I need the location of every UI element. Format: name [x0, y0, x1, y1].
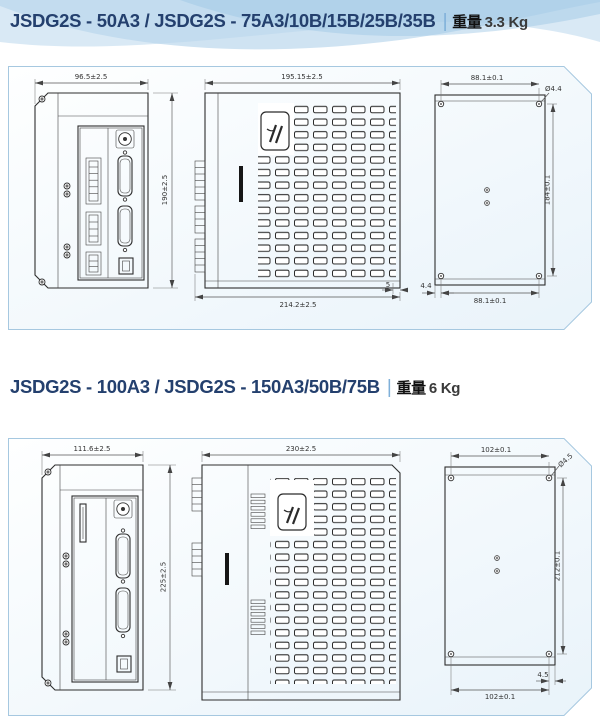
- mounting-hole-icon: [448, 651, 454, 657]
- screw-icon: [64, 244, 70, 250]
- handle-slot: [225, 553, 229, 585]
- screw-icon: [63, 553, 69, 559]
- screw-icon: [64, 191, 70, 197]
- section1-model-name: JSDG2S - 50A3 / JSDG2S - 75A3/10B/15B/25…: [10, 10, 436, 32]
- brand-logo-icon: [261, 112, 289, 150]
- hole-diameter-dim: Ø4.4: [545, 85, 562, 93]
- section1-weight-label: 重量: [452, 11, 481, 32]
- title-separator: |: [387, 377, 392, 399]
- side-lip-dim: 5: [386, 281, 390, 289]
- front-height-dim: 190±2.5: [161, 175, 169, 205]
- mounting-hole-icon: [438, 101, 443, 106]
- section2-drawing-panel: 111.6±2.5 225±2.5: [8, 438, 592, 716]
- mounting-hole-icon: [438, 273, 443, 278]
- screw-icon: [45, 469, 51, 475]
- screw-icon: [64, 183, 70, 189]
- back-hole-span-top-dim: 88.1±0.1: [471, 74, 504, 82]
- screw-icon: [39, 96, 45, 102]
- screw-icon: [63, 631, 69, 637]
- front-width-dim: 111.6±2.5: [73, 445, 110, 453]
- screw-icon: [45, 680, 51, 686]
- screw-icon: [485, 188, 490, 193]
- section2-weight-value: 6 Kg: [429, 380, 460, 397]
- brand-logo-icon: [278, 494, 306, 530]
- side-depth-dim: 195.15±2.5: [281, 73, 323, 81]
- back-hole-span-top-dim: 102±0.1: [481, 446, 511, 454]
- section1-weight-value: 3.3 Kg: [485, 14, 528, 31]
- screw-icon: [39, 279, 45, 285]
- side-depth-dim: 230±2.5: [286, 445, 316, 453]
- mounting-hole-icon: [536, 101, 541, 106]
- screw-icon: [485, 201, 490, 206]
- mounting-hole-icon: [448, 475, 454, 481]
- screw-icon: [63, 561, 69, 567]
- section2-weight-label: 重量: [396, 377, 425, 398]
- section2-title: JSDG2S - 100A3 / JSDG2S - 150A3/50B/75B …: [10, 376, 460, 399]
- section2-model-name: JSDG2S - 100A3 / JSDG2S - 150A3/50B/75B: [10, 376, 380, 398]
- handle-slot: [239, 166, 243, 202]
- back-hole-edge-offset-dim: 4.5: [537, 671, 548, 679]
- mounting-hole-icon: [536, 273, 541, 278]
- back-hole-span-bottom-dim: 102±0.1: [485, 693, 515, 701]
- screw-icon: [495, 569, 500, 574]
- front-height-dim: 225±2.5: [160, 562, 168, 592]
- screw-icon: [495, 556, 500, 561]
- section1-drawing-panel: 96.5±2.5 190±2.5: [8, 66, 592, 330]
- back-hole-edge-offset-dim: 4.4: [420, 282, 432, 290]
- front-width-dim: 96.5±2.5: [75, 73, 108, 81]
- back-hole-span-bottom-dim: 88.1±0.1: [474, 297, 507, 305]
- side-overall-depth-dim: 214.2±2.5: [279, 301, 316, 309]
- title-separator: |: [443, 11, 448, 33]
- mounting-hole-icon: [546, 651, 552, 657]
- mounting-hole-icon: [546, 475, 552, 481]
- screw-icon: [63, 639, 69, 645]
- section1-title: JSDG2S - 50A3 / JSDG2S - 75A3/10B/15B/25…: [10, 10, 528, 33]
- back-hole-span-vertical-dim: 184±0.1: [544, 175, 552, 205]
- screw-icon: [64, 252, 70, 258]
- back-hole-span-vertical-dim: 212±0.1: [554, 551, 562, 581]
